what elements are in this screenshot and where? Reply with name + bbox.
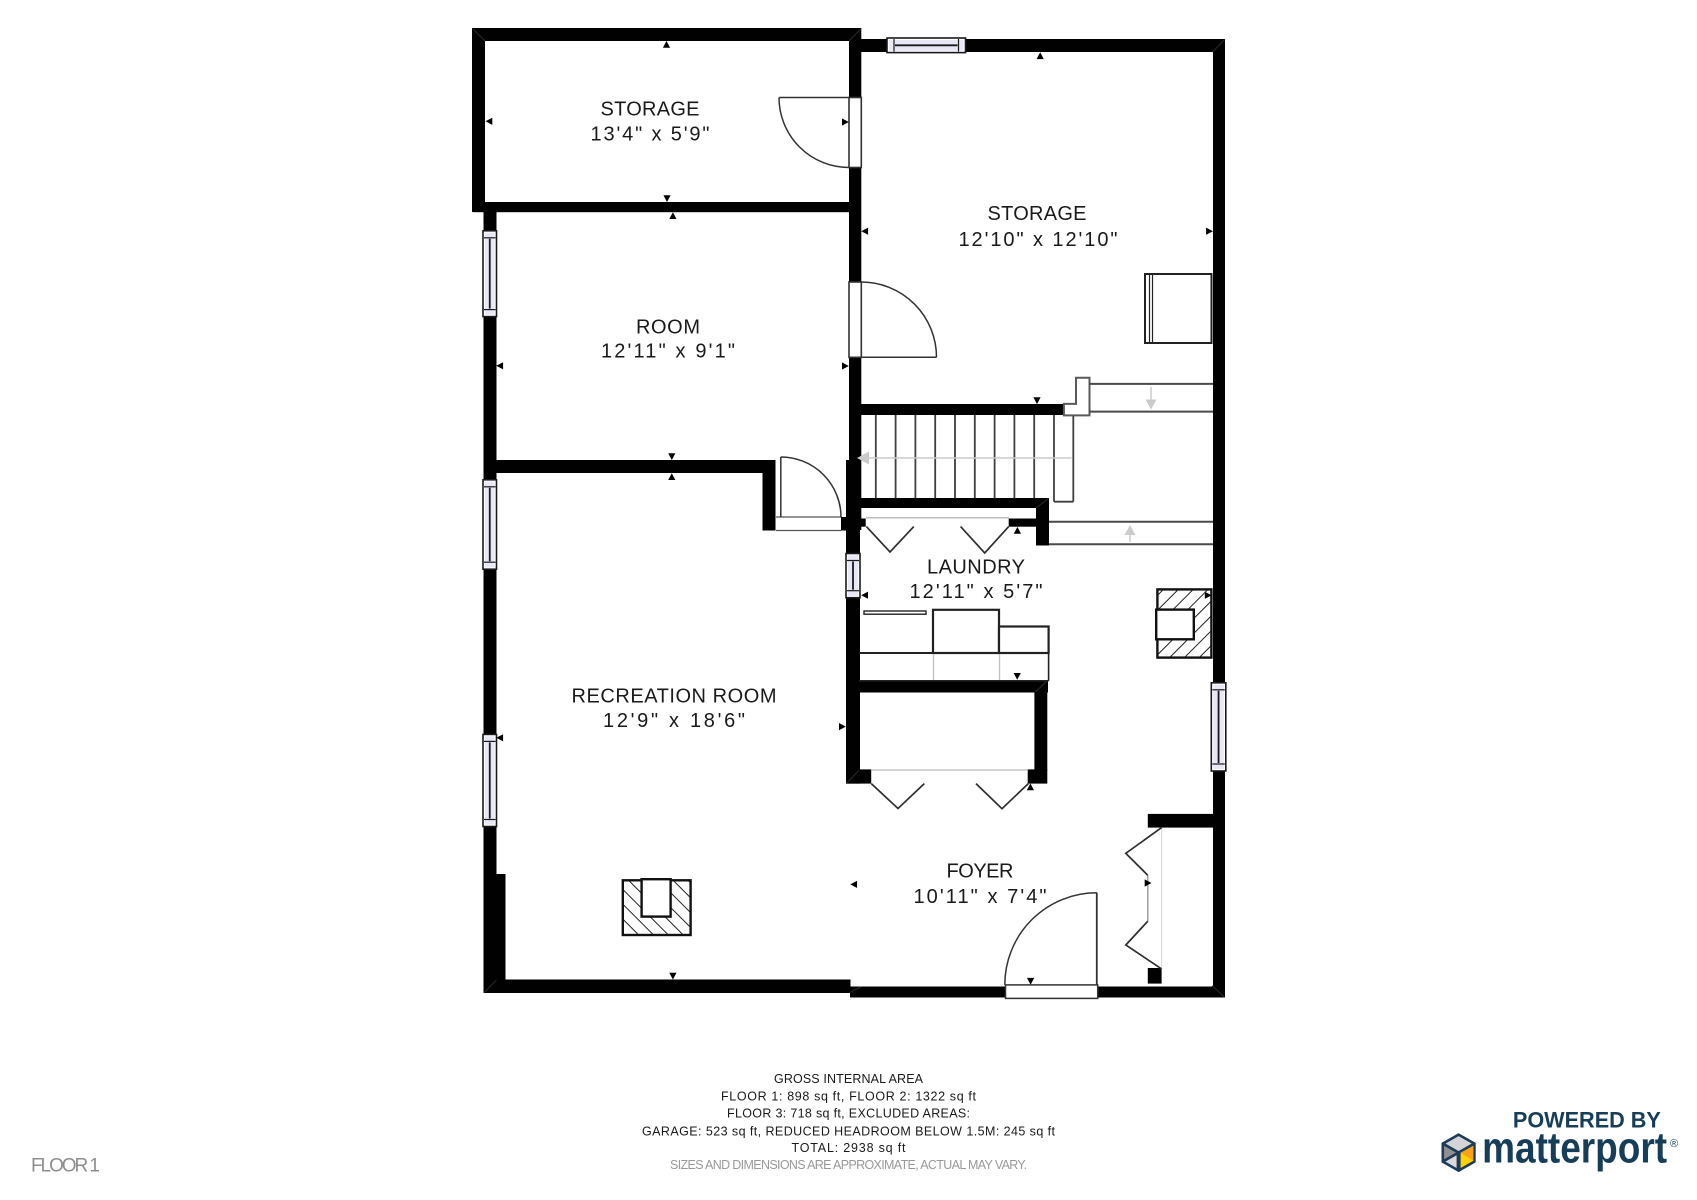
svg-text:STORAGE: STORAGE bbox=[988, 203, 1087, 225]
svg-text:FLOOR 1: FLOOR 1 bbox=[31, 1156, 100, 1177]
svg-text:matterport: matterport bbox=[1482, 1124, 1667, 1173]
svg-text:LAUNDRY: LAUNDRY bbox=[927, 557, 1025, 579]
svg-text:STORAGE: STORAGE bbox=[601, 99, 700, 121]
svg-text:®: ® bbox=[1670, 1138, 1678, 1150]
svg-text:FLOOR 3: 718 sq ft, EXCLUDED A: FLOOR 3: 718 sq ft, EXCLUDED AREAS: bbox=[727, 1107, 970, 1121]
svg-text:FOYER: FOYER bbox=[947, 861, 1014, 883]
svg-text:ROOM: ROOM bbox=[636, 317, 700, 339]
svg-text:12'10" x 12'10": 12'10" x 12'10" bbox=[959, 229, 1118, 251]
svg-text:TOTAL: 2938 sq ft: TOTAL: 2938 sq ft bbox=[792, 1141, 907, 1155]
svg-text:12'9" x 18'6": 12'9" x 18'6" bbox=[603, 710, 745, 732]
svg-text:12'11" x 5'7": 12'11" x 5'7" bbox=[910, 581, 1043, 603]
svg-text:GROSS INTERNAL AREA: GROSS INTERNAL AREA bbox=[774, 1072, 924, 1086]
svg-text:10'11" x 7'4": 10'11" x 7'4" bbox=[914, 886, 1047, 908]
svg-text:GARAGE: 523 sq ft, REDUCED HEA: GARAGE: 523 sq ft, REDUCED HEADROOM BELO… bbox=[642, 1124, 1056, 1138]
svg-text:12'11" x 9'1": 12'11" x 9'1" bbox=[601, 341, 735, 363]
svg-text:RECREATION ROOM: RECREATION ROOM bbox=[572, 686, 777, 708]
svg-text:FLOOR 1: 898 sq ft, FLOOR 2: 1: FLOOR 1: 898 sq ft, FLOOR 2: 1322 sq ft bbox=[721, 1090, 977, 1104]
svg-text:SIZES AND DIMENSIONS ARE APPRO: SIZES AND DIMENSIONS ARE APPROXIMATE, AC… bbox=[670, 1158, 1027, 1172]
